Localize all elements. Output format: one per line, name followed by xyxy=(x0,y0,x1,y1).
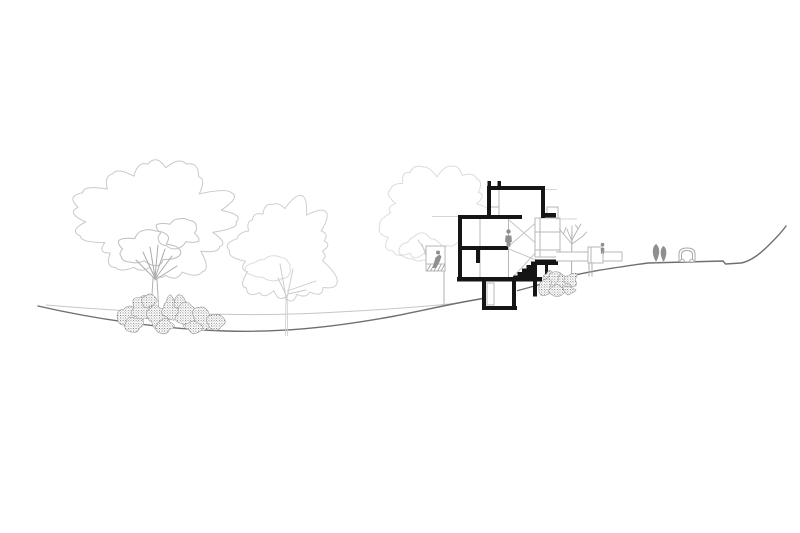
bare-tree xyxy=(560,224,587,277)
car-wheel xyxy=(690,259,694,261)
shrub-cluster-left xyxy=(117,294,225,334)
basement-left-wall xyxy=(482,281,486,307)
car-wheel xyxy=(680,259,684,261)
balcony xyxy=(426,246,445,304)
car xyxy=(679,248,695,262)
section-drawing-canvas xyxy=(0,0,800,533)
stair-lower-wall xyxy=(533,282,537,297)
deck-walkway xyxy=(556,243,622,277)
bare-tree-branches xyxy=(560,224,587,244)
annex-roof-bar xyxy=(541,213,556,218)
tree-canopy xyxy=(73,160,238,278)
interior-wall-stub xyxy=(476,250,480,263)
tree-inner-foliage xyxy=(245,256,290,281)
poplar-pair xyxy=(653,244,667,264)
deck-section-bar xyxy=(535,260,558,266)
roof-stub xyxy=(498,181,502,187)
tree-canopy xyxy=(227,195,337,301)
poplar-tree xyxy=(653,244,659,262)
mid-roof xyxy=(458,215,522,219)
tower-left-wall xyxy=(487,186,491,217)
shrub-cluster-right xyxy=(539,270,577,296)
deck-planter-box xyxy=(588,247,603,263)
upper-floor-slab xyxy=(458,246,508,250)
basement-slab xyxy=(482,306,517,310)
tree-trunk xyxy=(157,277,159,307)
architectural-section xyxy=(0,0,800,533)
large-deciduous-tree xyxy=(73,160,238,307)
tree-inner-foliage xyxy=(156,218,199,248)
grade-reference-line xyxy=(46,303,459,315)
poplar-tree xyxy=(661,246,667,262)
basement-right-wall xyxy=(512,281,516,307)
balcony-figure-head xyxy=(436,251,440,255)
annex-main-box xyxy=(535,218,560,257)
branch-fan xyxy=(136,245,177,280)
tower-roof xyxy=(487,186,545,190)
